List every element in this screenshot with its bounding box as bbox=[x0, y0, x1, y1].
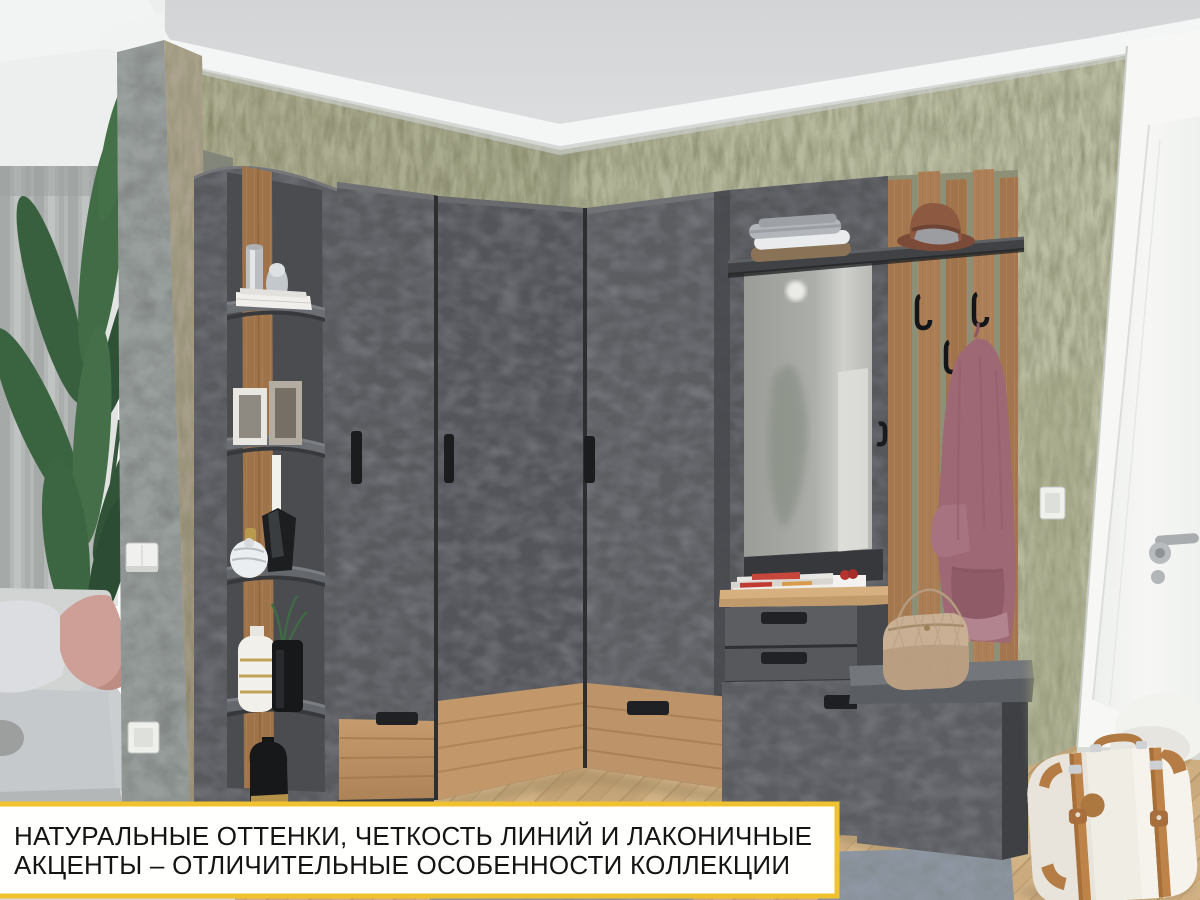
svg-text:АКЦЕНТЫ – ОТЛИЧИТЕЛЬНЫЕ ОСОБЕН: АКЦЕНТЫ – ОТЛИЧИТЕЛЬНЫЕ ОСОБЕННОСТИ КОЛЛ… bbox=[14, 850, 790, 880]
svg-text:НАТУРАЛЬНЫЕ ОТТЕНКИ, ЧЕТКОСТЬ: НАТУРАЛЬНЫЕ ОТТЕНКИ, ЧЕТКОСТЬ ЛИНИЙ И ЛА… bbox=[14, 821, 812, 851]
